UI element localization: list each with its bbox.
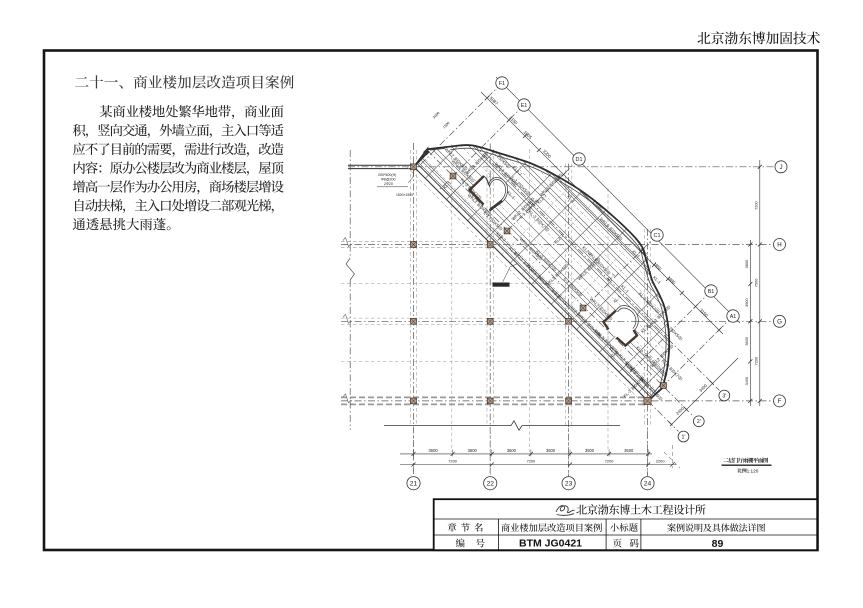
svg-text:7200: 7200 xyxy=(754,200,759,209)
svg-text:3600: 3600 xyxy=(744,259,749,268)
svg-text:3900: 3900 xyxy=(744,297,749,306)
svg-text:7500: 7500 xyxy=(754,278,759,287)
svg-text:7200: 7200 xyxy=(527,459,536,464)
svg-text:3600: 3600 xyxy=(429,448,439,453)
svg-text:F1: F1 xyxy=(499,81,505,87)
svg-text:3600: 3600 xyxy=(744,336,749,345)
svg-text:H: H xyxy=(777,242,781,249)
svg-text:3600: 3600 xyxy=(507,448,517,453)
svg-text:Φ8@200: Φ8@200 xyxy=(381,178,396,182)
svg-text:G: G xyxy=(777,319,782,326)
svg-text:3': 3' xyxy=(722,393,726,399)
svg-text:C1: C1 xyxy=(654,233,661,239)
svg-text:1:120: 1:120 xyxy=(747,468,759,473)
svg-text:D1: D1 xyxy=(576,157,583,163)
svg-text:3500: 3500 xyxy=(546,448,556,453)
svg-text:3600: 3600 xyxy=(468,448,478,453)
svg-text:7200: 7200 xyxy=(754,356,759,365)
svg-text:22: 22 xyxy=(486,481,494,488)
svg-text:24: 24 xyxy=(644,481,652,488)
svg-text:21: 21 xyxy=(410,481,418,488)
svg-text:3500: 3500 xyxy=(624,448,634,453)
svg-text:1': 1' xyxy=(682,434,686,440)
svg-text:A1: A1 xyxy=(730,314,737,320)
svg-text:3400: 3400 xyxy=(744,376,749,385)
svg-text:F: F xyxy=(778,398,782,405)
svg-text:89: 89 xyxy=(712,538,724,550)
svg-text:1500×1500: 1500×1500 xyxy=(396,193,413,197)
svg-text:BTM JG0421: BTM JG0421 xyxy=(519,538,582,550)
svg-text:3500: 3500 xyxy=(585,448,595,453)
svg-text:B1: B1 xyxy=(708,289,715,295)
svg-text:200*500(H): 200*500(H) xyxy=(378,173,396,177)
svg-text:2Φ20: 2Φ20 xyxy=(384,182,393,186)
svg-text:7200: 7200 xyxy=(605,459,614,464)
svg-text:7200: 7200 xyxy=(448,459,457,464)
svg-text:E1: E1 xyxy=(521,103,528,109)
svg-text:J: J xyxy=(779,164,782,171)
svg-text:2200: 2200 xyxy=(656,459,665,464)
svg-text:23: 23 xyxy=(565,481,573,488)
svg-text:2': 2' xyxy=(697,419,701,425)
